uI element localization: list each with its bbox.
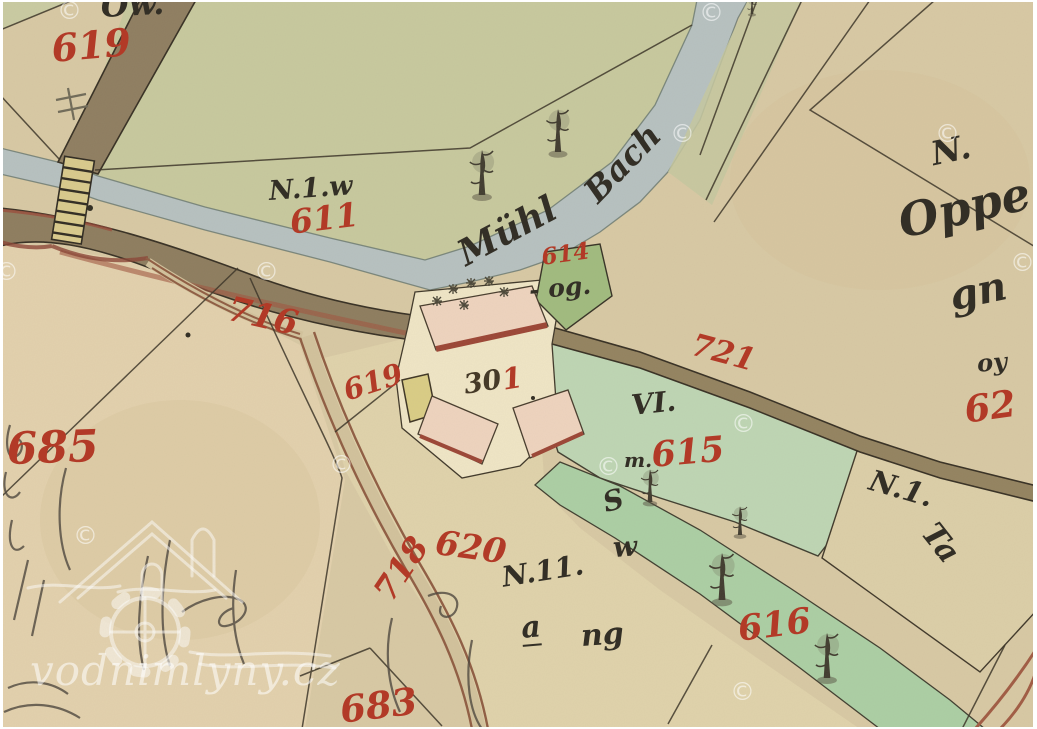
parcel-number-619-top: 619	[50, 23, 132, 68]
note-og: - og.	[528, 273, 592, 303]
parcel-number-620: 620	[433, 526, 508, 570]
edge-right	[1033, 0, 1037, 729]
note-ng: ng	[580, 619, 625, 652]
copyright-watermark: ©	[596, 454, 621, 479]
copyright-watermark: ©	[329, 452, 354, 477]
note-ow: Ow.	[100, 0, 165, 22]
copyright-watermark: ©	[254, 259, 279, 284]
site-watermark: vodnimlyny.cz	[30, 650, 341, 692]
copyright-watermark: ©	[1010, 250, 1035, 275]
copyright-watermark: ©	[57, 0, 82, 23]
parcel-number-614: 614	[540, 239, 591, 268]
note-gn: gn	[946, 266, 1010, 317]
edge-left	[0, 0, 3, 729]
copyright-watermark: ©	[731, 411, 756, 436]
copyright-watermark: ©	[73, 523, 98, 548]
copyright-watermark: ©	[670, 121, 695, 146]
parcel-number-683: 683	[338, 683, 419, 729]
copyright-watermark: ©	[699, 0, 724, 25]
parcel-number-62: 62	[962, 385, 1018, 429]
note-a-underlined: a	[520, 612, 542, 647]
parcel-number-685: 685	[6, 425, 99, 472]
parcel-number-616: 616	[736, 603, 813, 647]
note-w: w	[612, 532, 638, 562]
note-oy: oy	[976, 349, 1008, 376]
note-vi: VI.	[630, 387, 677, 420]
parcel-number-615: 615	[650, 432, 726, 473]
house-number-301-black: 30	[462, 366, 503, 399]
copyright-watermark: ©	[730, 679, 755, 704]
edge-top	[0, 0, 1037, 2]
note-n1w: N.1.w	[268, 172, 353, 205]
cadastral-map: 619 611 716 614 619 30 1 721 62 615 685 …	[0, 0, 1037, 729]
house-number-301-red: 1	[500, 363, 524, 395]
note-m-prefix: m.	[624, 450, 652, 470]
copyright-watermark: ©	[935, 121, 960, 146]
